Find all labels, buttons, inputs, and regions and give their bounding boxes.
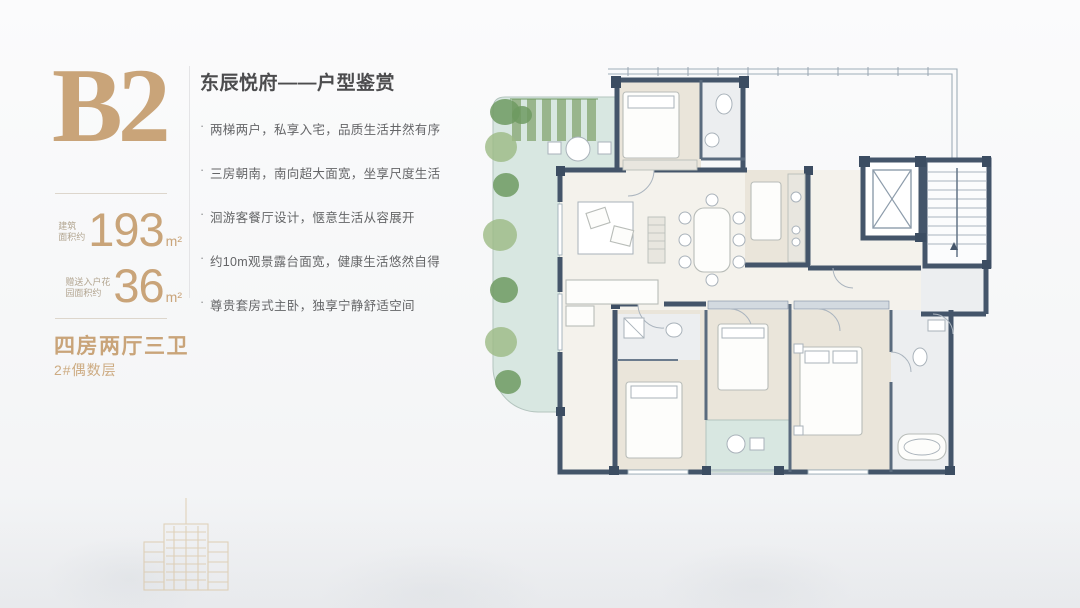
feature-item: 洄游客餐厅设计，惬意生活从容展开 — [200, 207, 480, 226]
toilet — [913, 348, 927, 366]
area-unit: m² — [166, 233, 182, 249]
window — [558, 204, 562, 255]
area-label-line1: 赠送入户花 — [65, 277, 110, 287]
feature-item: 三房朝南，南向超大面宽，坐享尺度生活 — [200, 163, 480, 182]
area-label: 建筑 面积约 — [58, 221, 85, 244]
area-label-line2: 园面积约 — [65, 288, 101, 298]
balcony-table — [727, 435, 745, 453]
page-title: 东辰悦府——户型鉴赏 — [200, 68, 480, 95]
sink — [705, 133, 719, 147]
area-label-line1: 建筑 — [58, 221, 76, 231]
sofa — [566, 280, 658, 304]
info-panel: 东辰悦府——户型鉴赏 两梯两户，私享入宅，品质生活井然有序 三房朝南，南向超大面… — [200, 68, 480, 339]
kitchen-island — [751, 182, 781, 240]
building-icon — [128, 498, 244, 596]
bathroom-north — [701, 80, 745, 159]
divider-bottom — [55, 318, 167, 319]
window — [808, 470, 868, 474]
window — [628, 470, 688, 474]
area-value: 193 — [88, 210, 163, 250]
wardrobe — [623, 160, 697, 170]
area-label: 赠送入户花 园面积约 — [65, 277, 110, 300]
toilet — [716, 94, 732, 114]
kitchen-sink — [791, 192, 801, 202]
window-band — [708, 301, 788, 309]
vertical-divider — [189, 66, 190, 298]
bathtub — [898, 434, 946, 460]
balcony-chair — [750, 438, 764, 450]
sofa-chaise — [566, 306, 594, 326]
bathroom-hall — [921, 268, 986, 314]
area-value: 36 — [113, 266, 163, 306]
layout-type: 四房两厅三卫 — [54, 330, 189, 360]
toilet — [666, 323, 682, 337]
left-panel: B2 建筑 面积约 193 m² 赠送入户花 园面积约 36 m² 四房两厅三卫… — [52, 50, 187, 161]
area-stat-garden: 赠送入户花 园面积约 36 m² — [52, 258, 182, 306]
floor-note: 2#偶数层 — [54, 360, 117, 380]
kitchen-counter — [788, 174, 805, 262]
area-unit: m² — [166, 289, 182, 305]
unit-code: B2 — [52, 50, 187, 161]
window — [558, 294, 562, 350]
divider-top — [55, 193, 167, 194]
area-stat-built: 建筑 面积约 193 m² — [52, 202, 182, 250]
window-band — [794, 301, 889, 309]
feature-item: 约10m观景露台面宽，健康生活悠然自得 — [200, 251, 480, 270]
floor-plan — [478, 52, 1010, 488]
cabinet — [648, 217, 665, 263]
area-label-line2: 面积约 — [58, 232, 85, 242]
feature-list: 两梯两户，私享入宅，品质生活井然有序 三房朝南，南向超大面宽，坐享尺度生活 洄游… — [200, 119, 480, 314]
area-stats: 建筑 面积约 193 m² 赠送入户花 园面积约 36 m² — [52, 202, 182, 314]
feature-item: 尊贵套房式主卧，独享宁静舒适空间 — [200, 295, 480, 314]
sink — [928, 320, 945, 331]
feature-item: 两梯两户，私享入宅，品质生活井然有序 — [200, 119, 480, 138]
south-balcony — [706, 420, 790, 472]
page: { "left_panel": { "unit_code": "B2", "ar… — [0, 0, 1080, 608]
